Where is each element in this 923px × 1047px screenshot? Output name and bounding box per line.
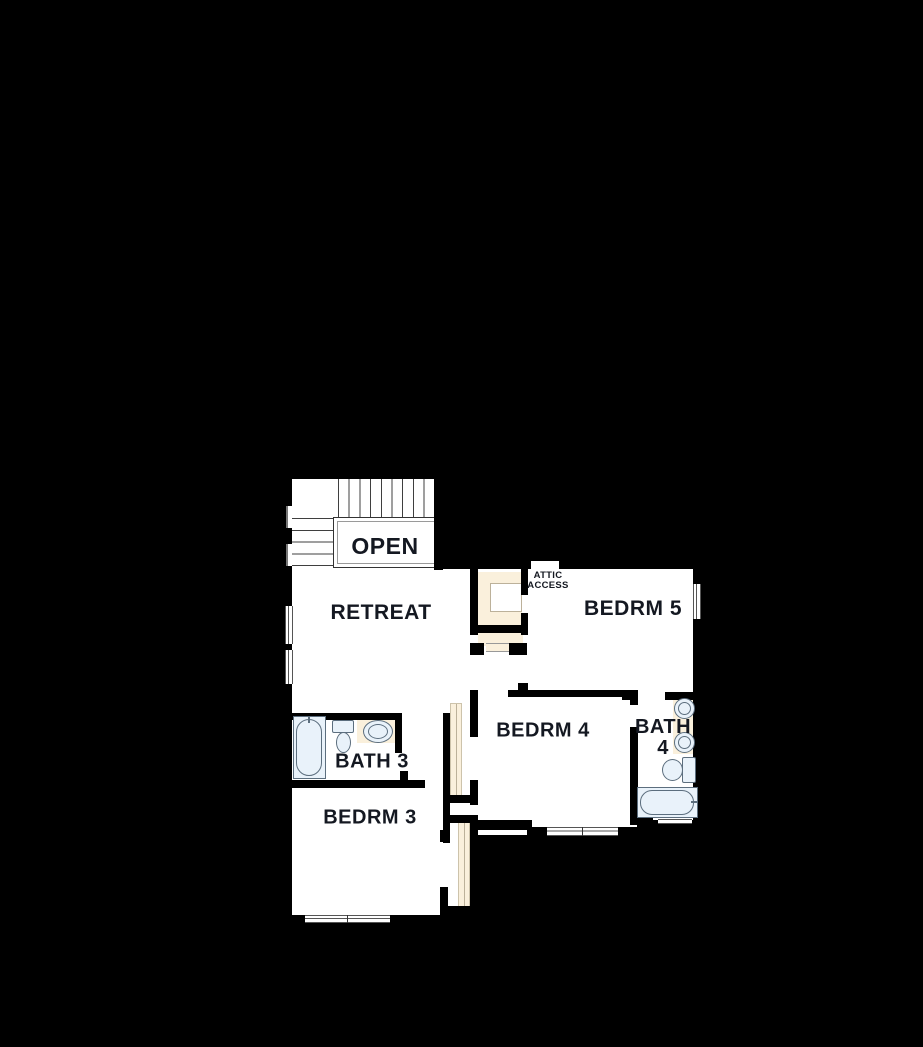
- window: [693, 584, 701, 619]
- stair-treads-upper: [338, 479, 434, 518]
- wall: [559, 561, 700, 569]
- wall: [440, 830, 448, 842]
- bath4-line1: BATH: [635, 717, 691, 738]
- room-label-open: OPEN: [351, 534, 418, 558]
- wall: [475, 820, 532, 830]
- window-mullion: [347, 915, 348, 923]
- wall: [622, 692, 636, 700]
- wall: [285, 472, 443, 479]
- sink-basin: [678, 702, 691, 715]
- room-label-bath3: BATH 3: [335, 752, 409, 773]
- wall: [509, 643, 527, 655]
- wall: [470, 625, 528, 633]
- attic-access-line2: ACCESS: [527, 581, 568, 591]
- attic-access-label: ATTIC ACCESS: [527, 571, 568, 591]
- bathtub-basin: [296, 719, 322, 776]
- wall: [287, 915, 305, 922]
- wall: [390, 915, 455, 922]
- wall: [443, 713, 450, 843]
- window-mullion: [582, 827, 583, 836]
- wall: [285, 684, 292, 922]
- wall: [693, 561, 700, 585]
- window: [285, 650, 293, 684]
- faucet: [691, 801, 697, 803]
- bath4-line2: 4: [635, 738, 691, 759]
- wall: [518, 683, 528, 690]
- room-label-bedrm4: BEDRM 4: [496, 721, 590, 742]
- wall: [470, 643, 484, 655]
- wall: [285, 528, 292, 544]
- window: [285, 606, 293, 644]
- toilet-bowl: [662, 759, 683, 781]
- wall: [470, 823, 478, 918]
- floor-plan: OPEN RETREAT ATTIC ACCESS BEDRM 5 BEDRM …: [0, 0, 923, 1047]
- faucet: [308, 716, 310, 723]
- wall: [637, 818, 653, 835]
- wall: [292, 780, 425, 788]
- wall: [395, 713, 402, 753]
- sink-basin: [368, 724, 388, 739]
- attic-access-gap: [531, 561, 559, 569]
- wall: [285, 566, 292, 606]
- hall-closet-lower: [458, 822, 470, 907]
- wall: [470, 690, 478, 737]
- room-label-bedrm3: BEDRM 3: [323, 808, 417, 829]
- bathtub-basin: [640, 790, 694, 815]
- room-label-bedrm5: BEDRM 5: [584, 598, 682, 620]
- stair-treads-lower: [292, 518, 338, 566]
- wall: [434, 561, 531, 569]
- room-label-retreat: RETREAT: [330, 602, 431, 624]
- wall: [285, 472, 292, 506]
- wall: [508, 690, 638, 697]
- floor-bedrm4: [472, 690, 638, 835]
- wall: [434, 472, 443, 570]
- bedrm5-closet-floor: [490, 583, 522, 612]
- hall-closet-upper: [450, 703, 462, 797]
- toilet-tank: [682, 757, 696, 783]
- room-label-bath4: BATH 4: [635, 717, 691, 759]
